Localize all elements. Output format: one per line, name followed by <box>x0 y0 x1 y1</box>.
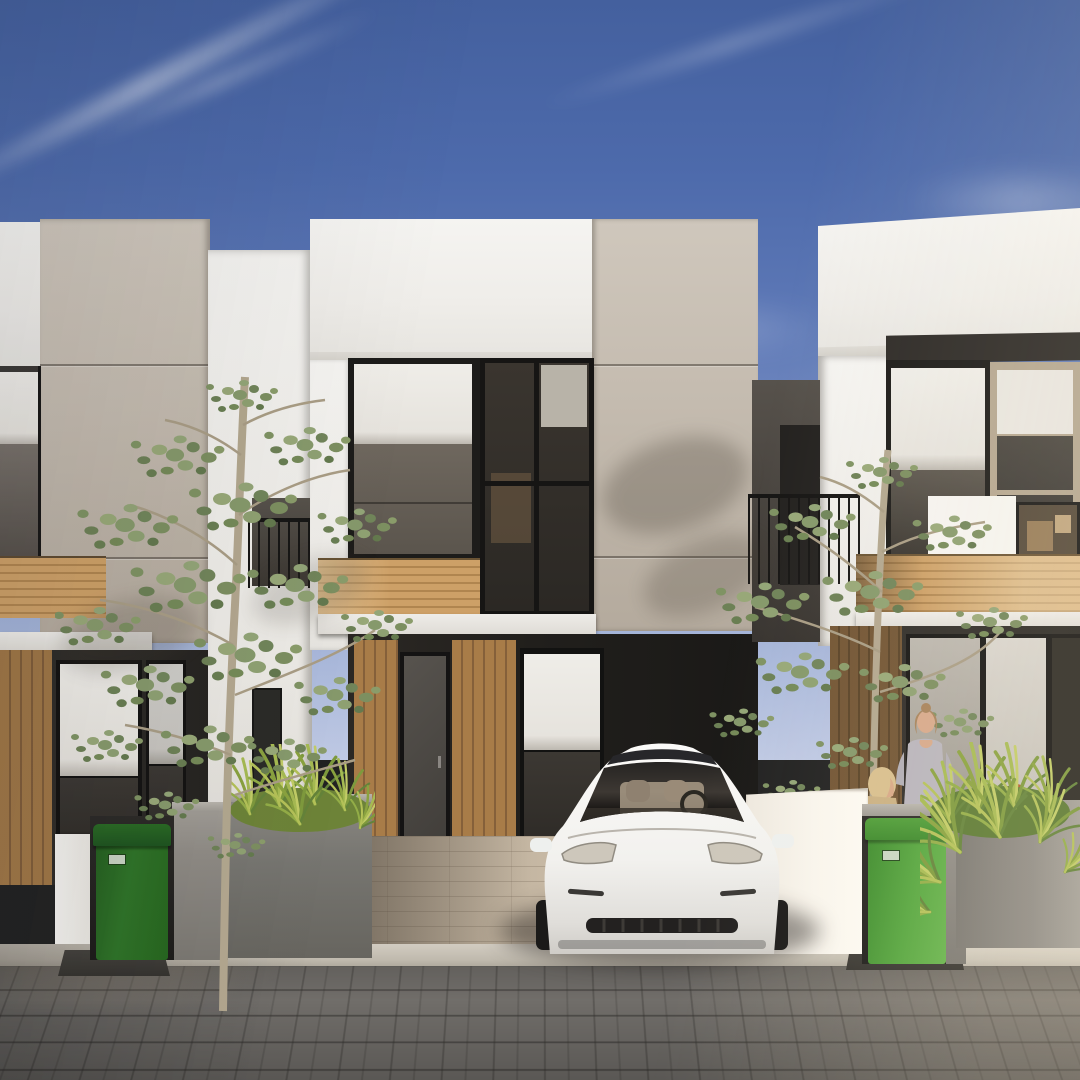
window-mullion <box>472 358 480 560</box>
window-glass <box>485 363 589 611</box>
wood-slat-wall <box>0 650 52 885</box>
white-sedan <box>528 742 796 960</box>
facade-reveal-line <box>594 364 758 366</box>
interior-furniture <box>1055 515 1071 533</box>
roller-shade <box>524 654 600 750</box>
bumper-lip-shadow <box>558 940 766 949</box>
mirror-left <box>530 838 552 852</box>
roller-shade <box>0 372 38 444</box>
door-handle <box>438 756 441 768</box>
right-window-head-fascia <box>886 332 1080 363</box>
left-house-white-fascia <box>0 222 44 370</box>
mirror-right <box>772 834 794 848</box>
bin-label <box>882 850 900 861</box>
window-transom <box>485 481 589 486</box>
glass-reflection <box>541 365 587 427</box>
left-house-corner-window <box>0 366 41 558</box>
scene-townhouse-rendering <box>0 0 1080 1080</box>
left-tree <box>55 325 425 1015</box>
window-mullion <box>534 363 539 611</box>
wood-slat-pier <box>452 640 516 850</box>
center-upper-window-tall <box>480 358 594 616</box>
right-planter-grass <box>920 742 1080 942</box>
window-glass <box>0 444 38 558</box>
